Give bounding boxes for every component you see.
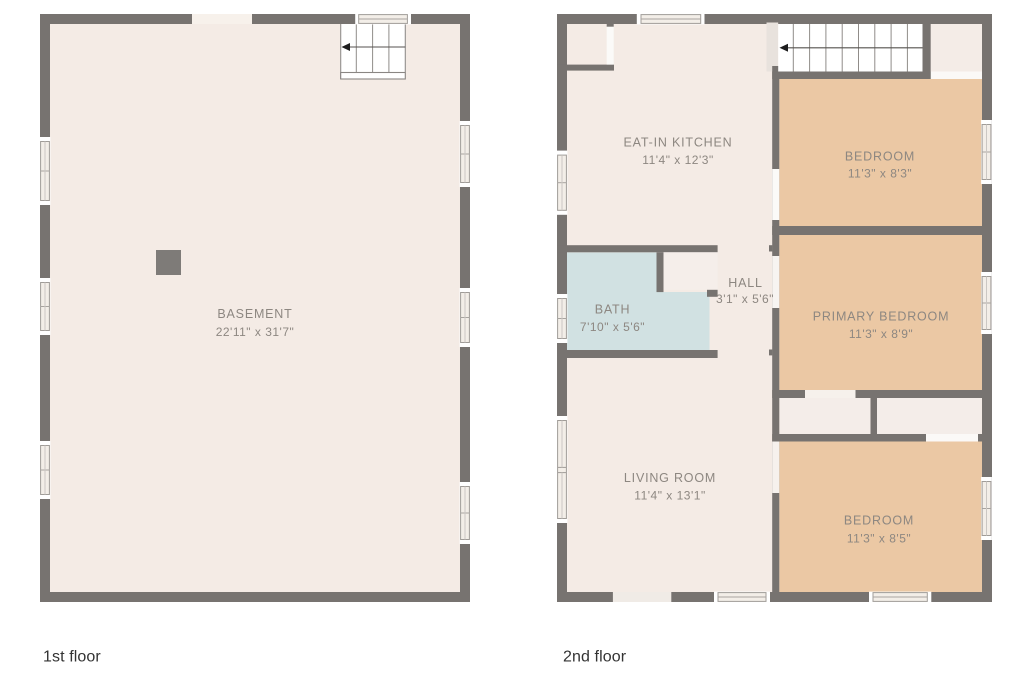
svg-text:22'11" x 31'7": 22'11" x 31'7" xyxy=(216,325,295,339)
svg-text:BEDROOM: BEDROOM xyxy=(844,514,914,528)
svg-text:2nd floor: 2nd floor xyxy=(563,649,627,666)
svg-text:11'3" x 8'3": 11'3" x 8'3" xyxy=(848,167,912,181)
svg-text:BEDROOM: BEDROOM xyxy=(845,150,915,164)
svg-text:11'4" x 12'3": 11'4" x 12'3" xyxy=(642,153,713,167)
svg-text:BASEMENT: BASEMENT xyxy=(217,307,292,321)
svg-text:LIVING ROOM: LIVING ROOM xyxy=(624,471,716,485)
svg-text:HALL: HALL xyxy=(728,276,762,290)
svg-text:BATH: BATH xyxy=(595,303,631,317)
svg-text:11'3" x 8'5": 11'3" x 8'5" xyxy=(847,532,911,546)
svg-text:11'4" x 13'1": 11'4" x 13'1" xyxy=(634,489,705,503)
svg-text:PRIMARY BEDROOM: PRIMARY BEDROOM xyxy=(813,310,950,324)
svg-text:7'10" x 5'6": 7'10" x 5'6" xyxy=(580,320,645,334)
svg-text:1st floor: 1st floor xyxy=(43,649,101,666)
svg-text:11'3" x 8'9": 11'3" x 8'9" xyxy=(849,327,913,341)
svg-text:3'1" x 5'6": 3'1" x 5'6" xyxy=(716,292,774,306)
svg-text:EAT-IN KITCHEN: EAT-IN KITCHEN xyxy=(624,136,733,150)
